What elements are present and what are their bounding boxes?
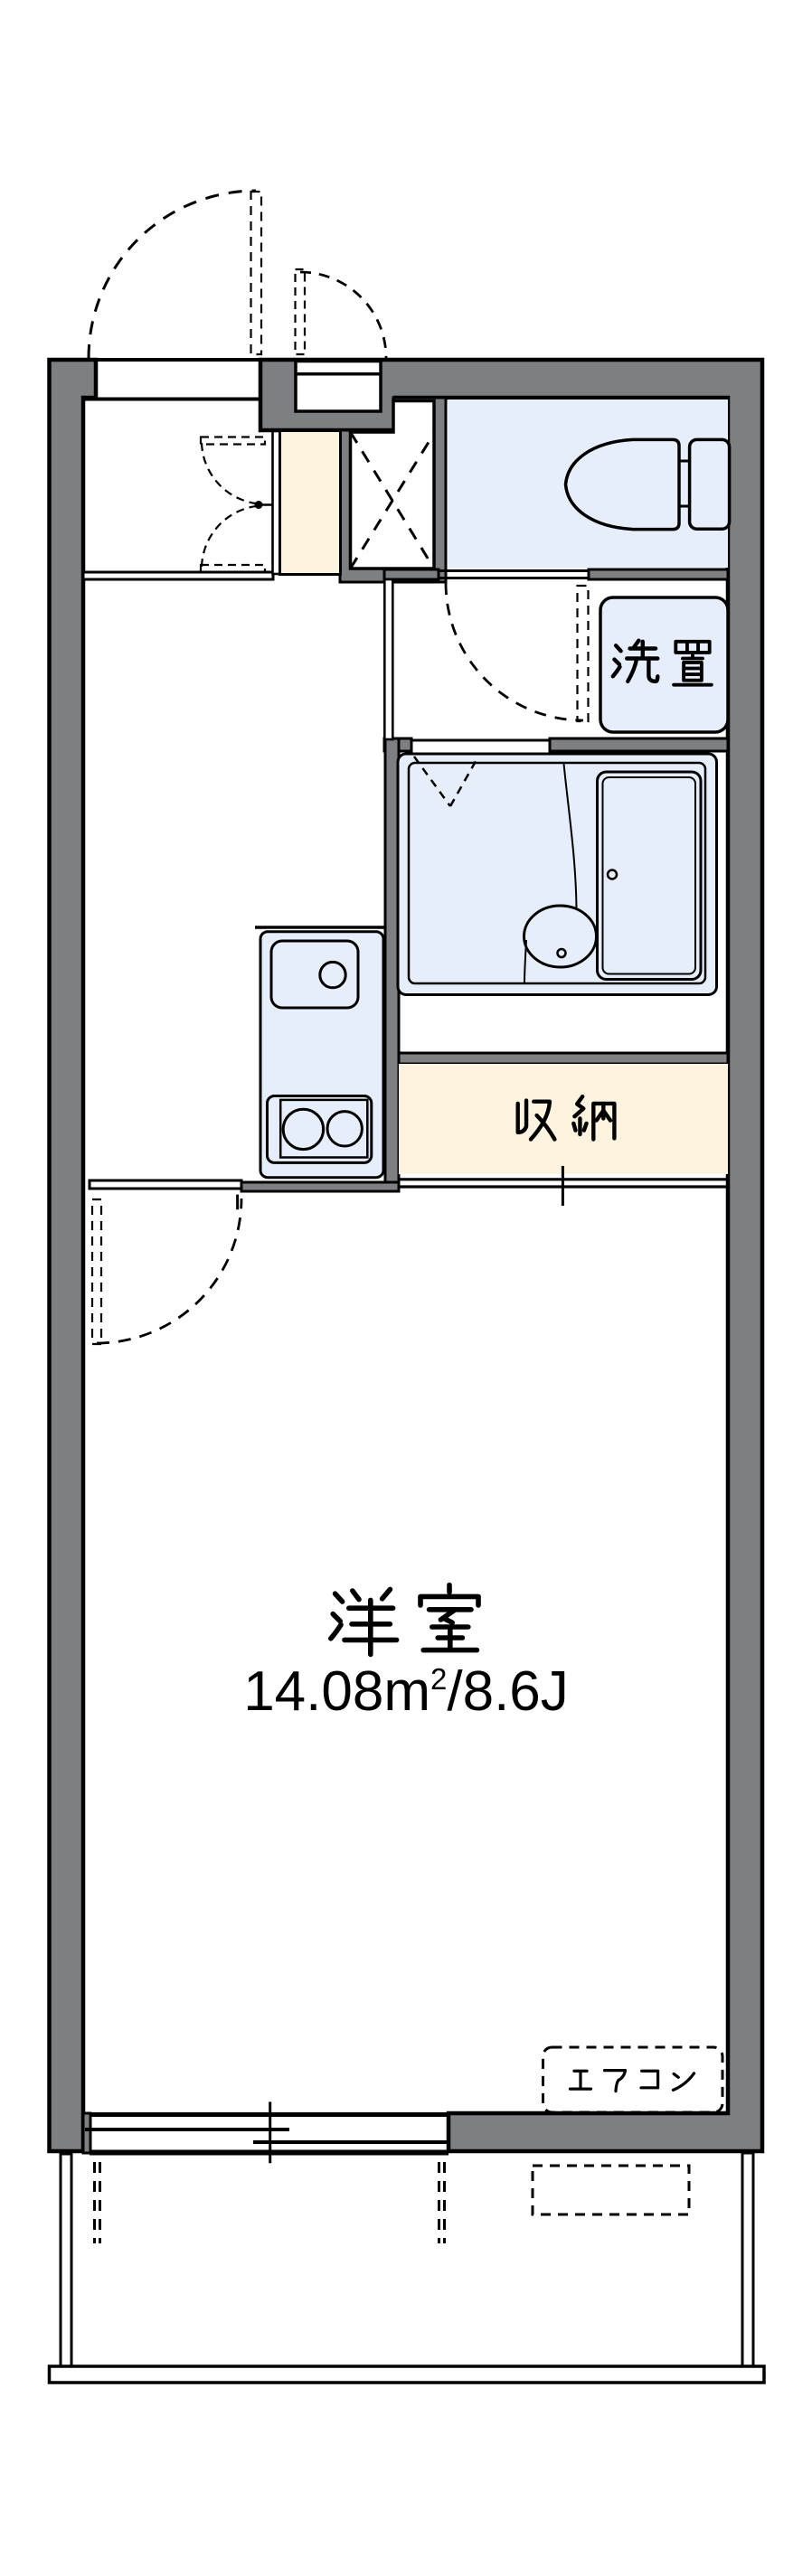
svg-text:14.08m2/8.6J: 14.08m2/8.6J <box>243 1660 569 1723</box>
